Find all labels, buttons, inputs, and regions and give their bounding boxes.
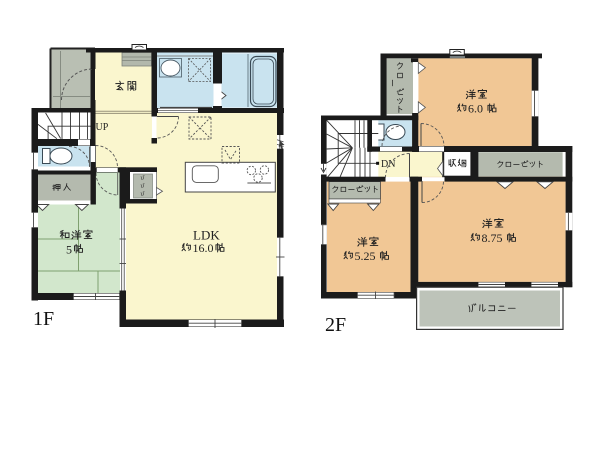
svg-text:6.0: 6.0 <box>468 102 483 116</box>
svg-text:DN: DN <box>381 159 395 170</box>
svg-text:UP: UP <box>96 122 109 133</box>
svg-text:5.25: 5.25 <box>355 249 376 263</box>
svg-text:2F: 2F <box>325 314 346 336</box>
svg-text:16.0: 16.0 <box>193 241 214 255</box>
svg-text:8.75: 8.75 <box>482 231 503 245</box>
svg-text:5: 5 <box>66 243 72 257</box>
svg-text:1F: 1F <box>33 308 54 330</box>
